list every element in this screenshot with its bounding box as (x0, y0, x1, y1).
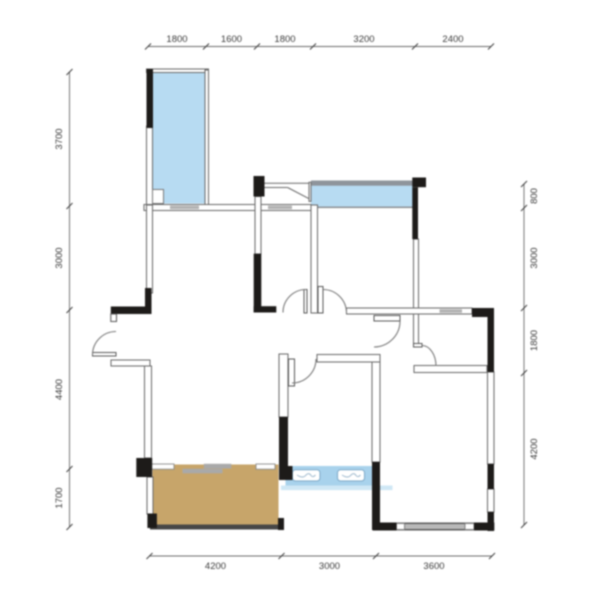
svg-text:3000: 3000 (529, 247, 540, 268)
svg-text:1800: 1800 (529, 330, 540, 351)
svg-text:3200: 3200 (353, 34, 374, 45)
svg-text:4200: 4200 (205, 561, 226, 572)
svg-text:1700: 1700 (54, 487, 65, 508)
svg-text:3000: 3000 (54, 247, 65, 268)
svg-text:3700: 3700 (54, 128, 65, 149)
svg-text:4400: 4400 (54, 379, 65, 400)
svg-text:1800: 1800 (274, 34, 295, 45)
svg-text:1600: 1600 (221, 34, 242, 45)
svg-text:1800: 1800 (166, 34, 187, 45)
svg-text:2400: 2400 (442, 34, 463, 45)
svg-text:3600: 3600 (423, 561, 444, 572)
svg-text:4200: 4200 (529, 438, 540, 459)
svg-text:3000: 3000 (319, 561, 340, 572)
svg-text:800: 800 (529, 188, 540, 204)
